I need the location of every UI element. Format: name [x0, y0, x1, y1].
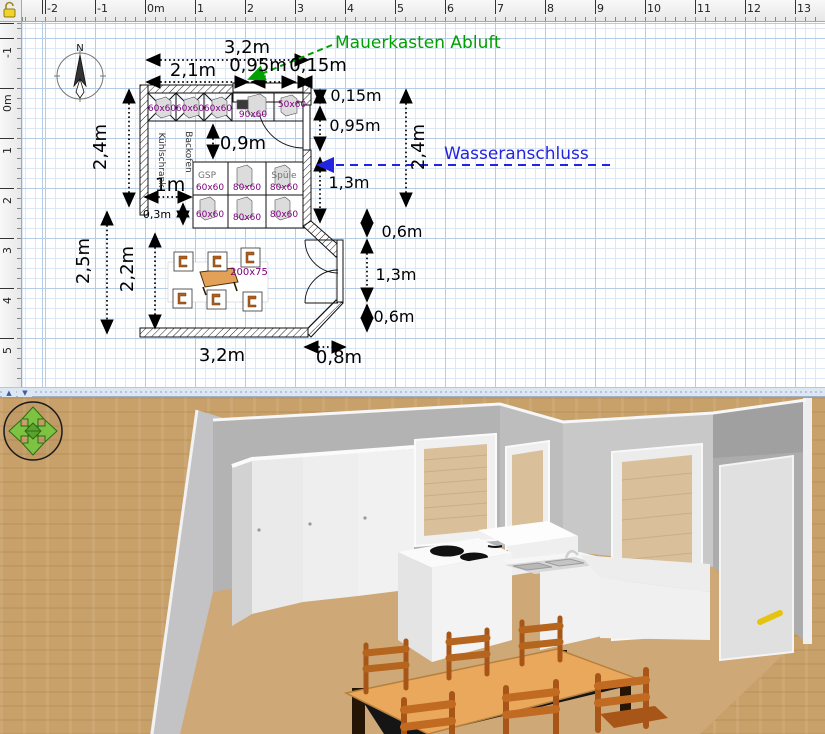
label-gsp: GSP	[198, 171, 217, 181]
dim-bottom-door: 0,8m	[316, 347, 362, 368]
cooktop	[430, 546, 464, 557]
dim-top-stub: 0,15m	[289, 55, 347, 76]
label-sink: Spüle	[271, 171, 297, 181]
dim-top-door: 0,95m	[229, 55, 287, 76]
white-door	[720, 456, 793, 660]
dim-chamfer-bot: 0,6m	[373, 307, 414, 326]
label-oven: Backofen	[183, 131, 193, 172]
dim-bottom-width: 3,2m	[199, 345, 245, 366]
plan-pane[interactable]: -2 -1 0m 1 2 3 4 5 6 7 8 9 10 11 12 13 -…	[0, 0, 825, 387]
dim-right-height: 2,4m	[408, 124, 429, 170]
split-pane-divider[interactable]: ▲ ▼	[0, 387, 825, 397]
view-3d-pane[interactable]	[0, 397, 825, 734]
dim-right-stub: 0,15m	[330, 86, 381, 105]
compass-north-label: N	[76, 43, 83, 54]
label-i4: 60x60	[196, 210, 225, 220]
dim-wall-stub: 0,3m	[143, 208, 171, 221]
kitchen-planner-window: -2 -1 0m 1 2 3 4 5 6 7 8 9 10 11 12 13 -…	[0, 0, 825, 734]
label-table: 200x75	[230, 267, 268, 278]
dim-chamfer-top: 0,6m	[381, 222, 422, 241]
right-wall-edge	[803, 398, 812, 644]
navigation-widget[interactable]	[4, 402, 62, 460]
scene-3d[interactable]	[0, 397, 825, 734]
dim-left-dining: 2,2m	[117, 246, 138, 292]
dim-aisle: 0,9m	[220, 133, 266, 154]
front-right-wall-band	[713, 400, 806, 458]
dim-right-wall: 1,3m	[328, 173, 369, 192]
label-cab50: 50x60	[278, 100, 307, 110]
label-fridge: Kühlschrank	[156, 133, 166, 189]
dim-door-opening: 1,3m	[375, 265, 416, 284]
dining-group[interactable]	[168, 248, 268, 311]
vent-annotation: Mauerkasten Abluft	[335, 33, 501, 53]
label-cab2: 60x60	[176, 104, 205, 114]
compass[interactable]: N	[54, 43, 106, 102]
label-cab90: 90x60	[239, 110, 268, 120]
dim-left-kitchen: 2,4m	[90, 124, 111, 170]
dim-right-door: 0,95m	[329, 116, 380, 135]
double-door[interactable]	[305, 240, 343, 303]
plan-drawing[interactable]: N	[0, 0, 825, 387]
label-i3: 80x60	[270, 183, 299, 193]
label-cab1: 60x60	[148, 104, 177, 114]
label-i1: 60x60	[196, 183, 225, 193]
label-cab3: 60x60	[204, 104, 233, 114]
label-i2: 80x60	[233, 183, 262, 193]
dim-top-left: 2,1m	[170, 60, 216, 81]
back-window	[415, 434, 496, 546]
label-i5: 80x60	[233, 213, 262, 223]
dim-left-total: 2,5m	[73, 238, 94, 284]
water-annotation: Wasseranschluss	[444, 144, 589, 164]
label-i6: 80x60	[270, 210, 299, 220]
